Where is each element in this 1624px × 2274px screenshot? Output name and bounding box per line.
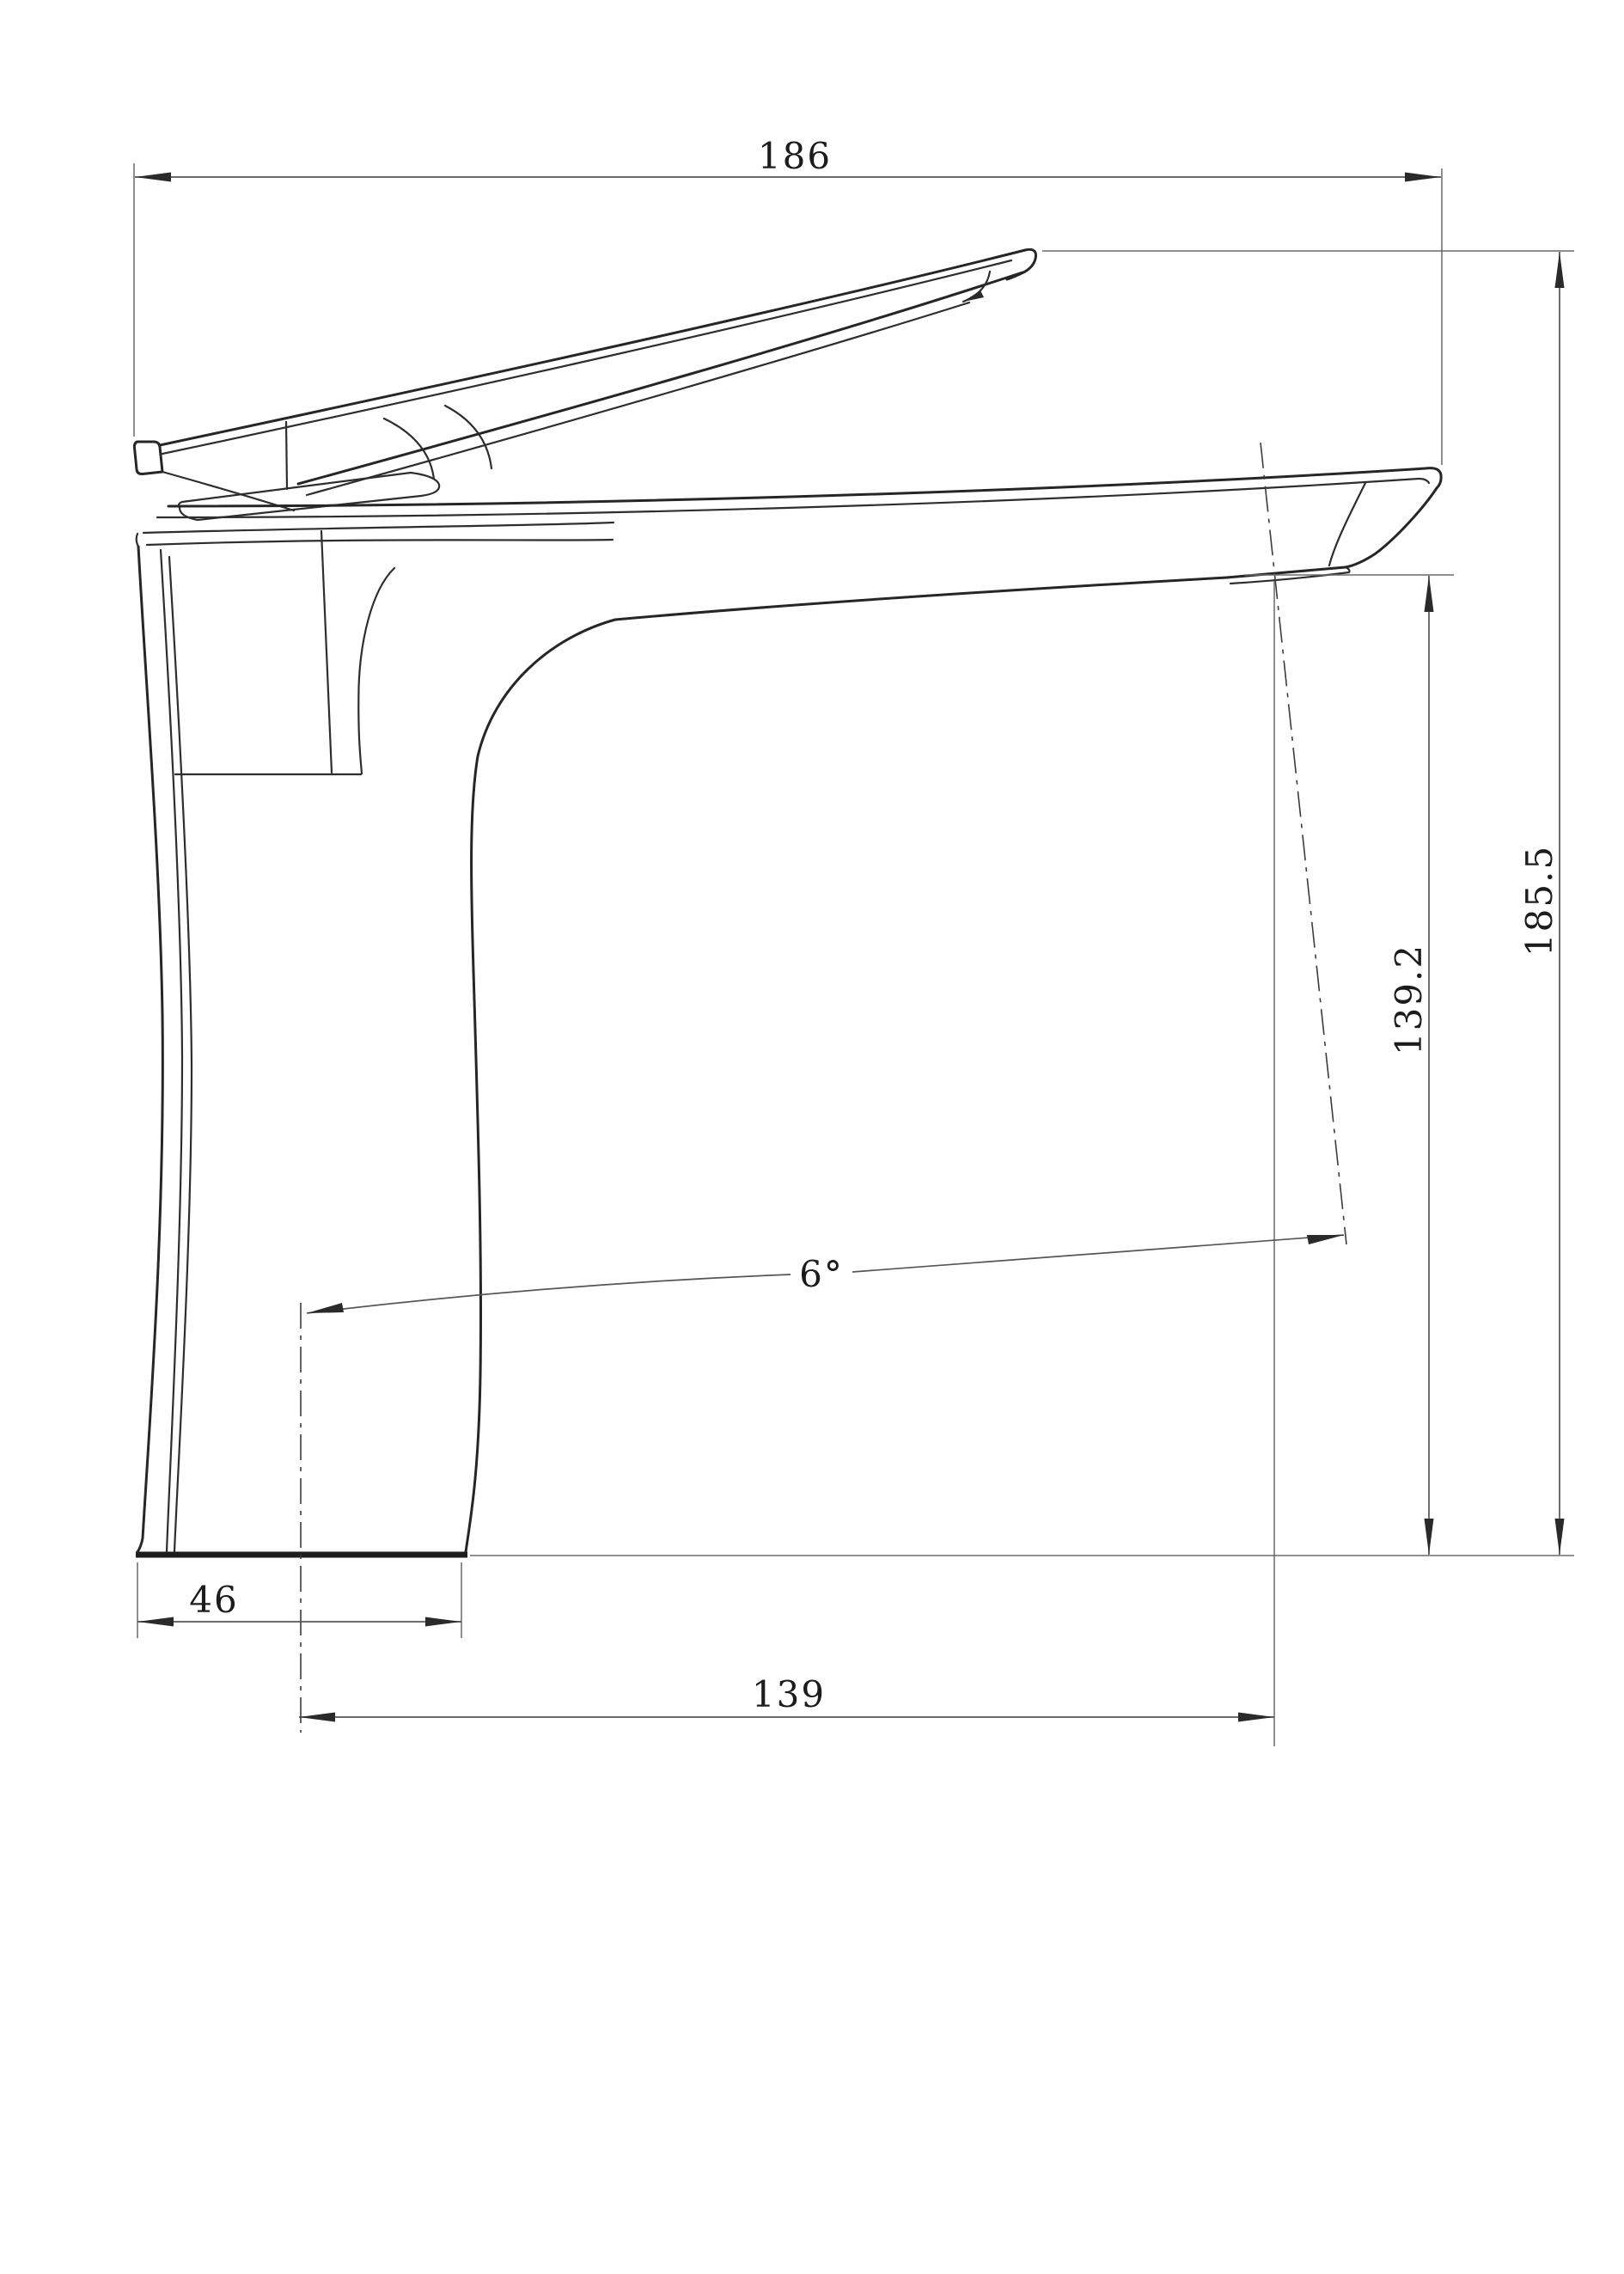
outlet-axis-centerline (1261, 443, 1346, 1244)
dim-arc-left (307, 1275, 791, 1313)
arrowhead (307, 1303, 344, 1313)
spout-top-edge (168, 468, 1441, 506)
arrowhead (1425, 1519, 1434, 1555)
handle-rear-cap (134, 442, 162, 474)
handle-underside-inner (307, 303, 969, 495)
spout-outlet-rim-front (1227, 567, 1346, 578)
arrowhead (1425, 576, 1434, 612)
arrowhead (1307, 1235, 1344, 1244)
dim-text-base-depth: 46 (189, 1579, 238, 1621)
dimension-angle-6: 6° (307, 1235, 1344, 1313)
centerlines (301, 443, 1346, 1733)
dim-text-overall-height: 185.5 (1518, 845, 1560, 957)
dimension-186: 186 (135, 135, 1441, 182)
collar-corner (137, 534, 138, 547)
dim-text-spout-angle: 6° (799, 1253, 844, 1295)
extension-lines (134, 163, 1574, 1746)
housing-seam-vertical (321, 531, 332, 773)
dimension-139-2: 139.2 (1388, 576, 1434, 1555)
drawing-sheet: 186 185.5 139.2 139 46 6° (0, 0, 1624, 2274)
dim-text-overall-width: 186 (758, 135, 832, 177)
dimension-46: 46 (137, 1579, 461, 1627)
spout-inner-curve (1329, 483, 1365, 565)
faucet-body (134, 249, 1441, 1555)
spout-underside (615, 578, 1227, 620)
arrowhead (137, 1617, 174, 1627)
shoulder-inner-curve (358, 568, 394, 773)
arrowhead (1238, 1713, 1274, 1722)
deck-line-lower (147, 540, 613, 545)
handle-top-edge (160, 250, 1025, 445)
handle-tip-curl-arrow (963, 290, 984, 302)
dimension-139: 139 (299, 1673, 1274, 1722)
dim-text-outlet-height: 139.2 (1388, 944, 1430, 1055)
dim-arc-right (852, 1235, 1344, 1272)
arrowhead (425, 1617, 461, 1627)
arrowhead (1555, 252, 1565, 288)
dimension-185-5: 185.5 (1518, 252, 1565, 1555)
arrowhead (1555, 1519, 1565, 1555)
arrowhead (1405, 173, 1441, 182)
dim-text-spout-reach: 139 (752, 1673, 826, 1715)
body-front-edge (466, 620, 615, 1552)
arrowhead (299, 1713, 335, 1722)
deck-line-upper (143, 523, 614, 533)
spout-front-edge (1346, 488, 1437, 567)
faucet-technical-drawing: 186 185.5 139.2 139 46 6° (0, 0, 1624, 2274)
handle-underside (298, 272, 1023, 484)
arrowhead (135, 173, 171, 182)
handle-top-edge-inner (162, 260, 1011, 454)
body-left-edge (137, 547, 162, 1552)
handle-waist-line (286, 422, 287, 489)
